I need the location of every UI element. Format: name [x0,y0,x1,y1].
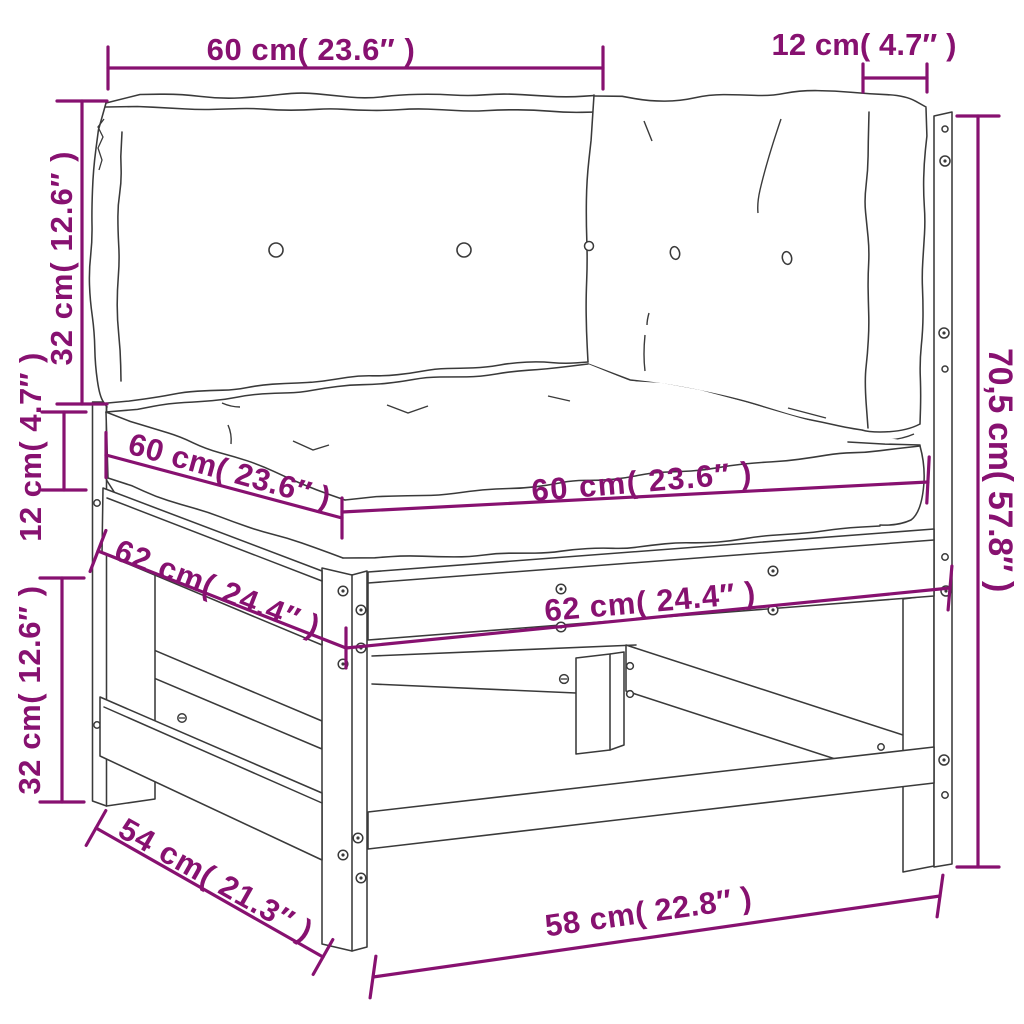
svg-text:12 cm( 4.7″ ): 12 cm( 4.7″ ) [771,27,956,62]
svg-text:32 cm( 12.6″ ): 32 cm( 12.6″ ) [12,585,47,794]
svg-text:70,5 cm( 57.8″ ): 70,5 cm( 57.8″ ) [981,348,1019,592]
svg-text:60 cm( 23.6″ ): 60 cm( 23.6″ ) [207,32,416,67]
svg-text:32 cm( 12.6″ ): 32 cm( 12.6″ ) [44,151,79,366]
svg-text:12 cm( 4.7″ ): 12 cm( 4.7″ ) [13,352,48,542]
